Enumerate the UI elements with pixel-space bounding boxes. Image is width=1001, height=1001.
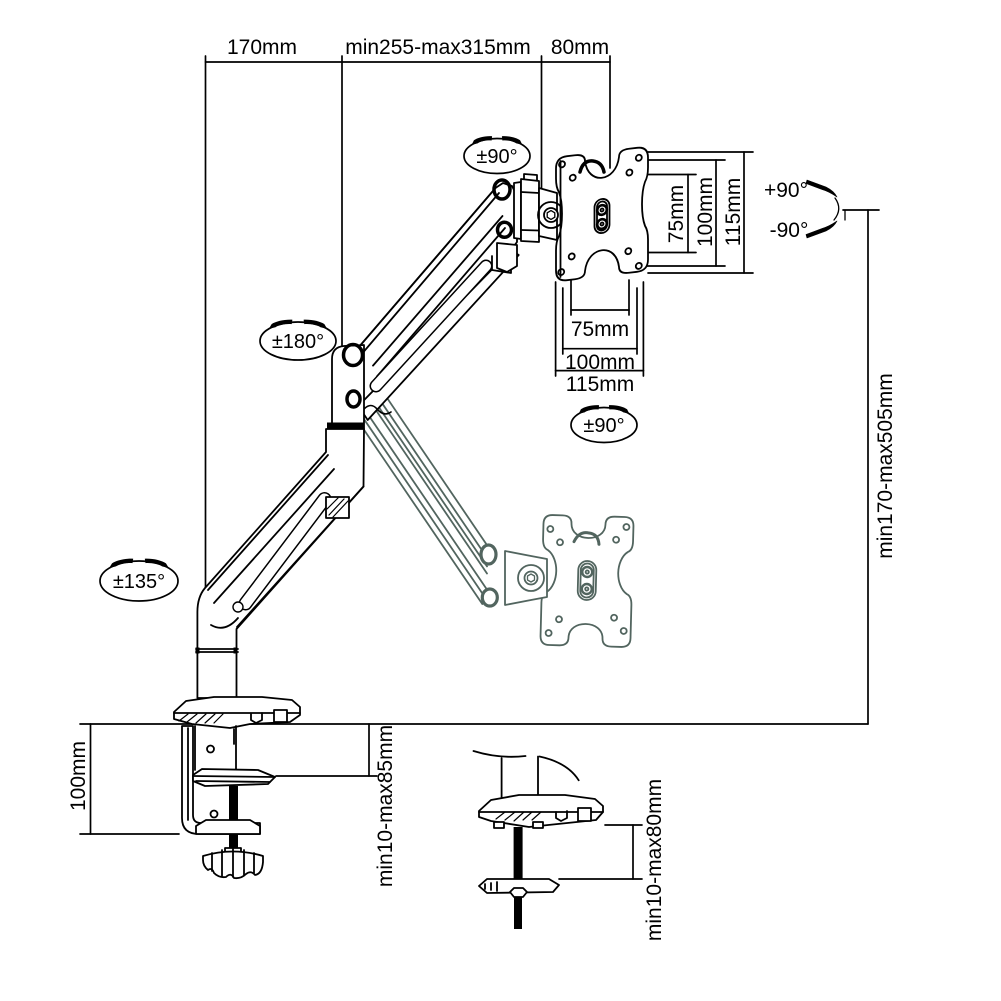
svg-text:+90°: +90° (764, 179, 808, 202)
svg-text:115mm: 115mm (566, 373, 634, 396)
svg-text:100mm: 100mm (565, 351, 635, 374)
svg-text:min255-max315mm: min255-max315mm (345, 36, 531, 59)
svg-text:80mm: 80mm (551, 36, 609, 59)
svg-text:115mm: 115mm (722, 178, 745, 246)
svg-text:±90°: ±90° (583, 415, 624, 437)
svg-text:75mm: 75mm (571, 318, 629, 341)
svg-text:±135°: ±135° (113, 571, 165, 593)
svg-text:100mm: 100mm (694, 177, 717, 247)
svg-text:min10-max80mm: min10-max80mm (643, 779, 666, 941)
svg-text:min10-max85mm: min10-max85mm (374, 725, 397, 887)
svg-text:-90°: -90° (770, 219, 809, 242)
svg-text:±180°: ±180° (272, 331, 324, 353)
svg-text:±90°: ±90° (476, 146, 517, 168)
svg-text:min170-max505mm: min170-max505mm (874, 373, 897, 559)
svg-text:75mm: 75mm (665, 185, 688, 243)
svg-text:100mm: 100mm (67, 741, 90, 811)
svg-text:170mm: 170mm (227, 36, 297, 59)
